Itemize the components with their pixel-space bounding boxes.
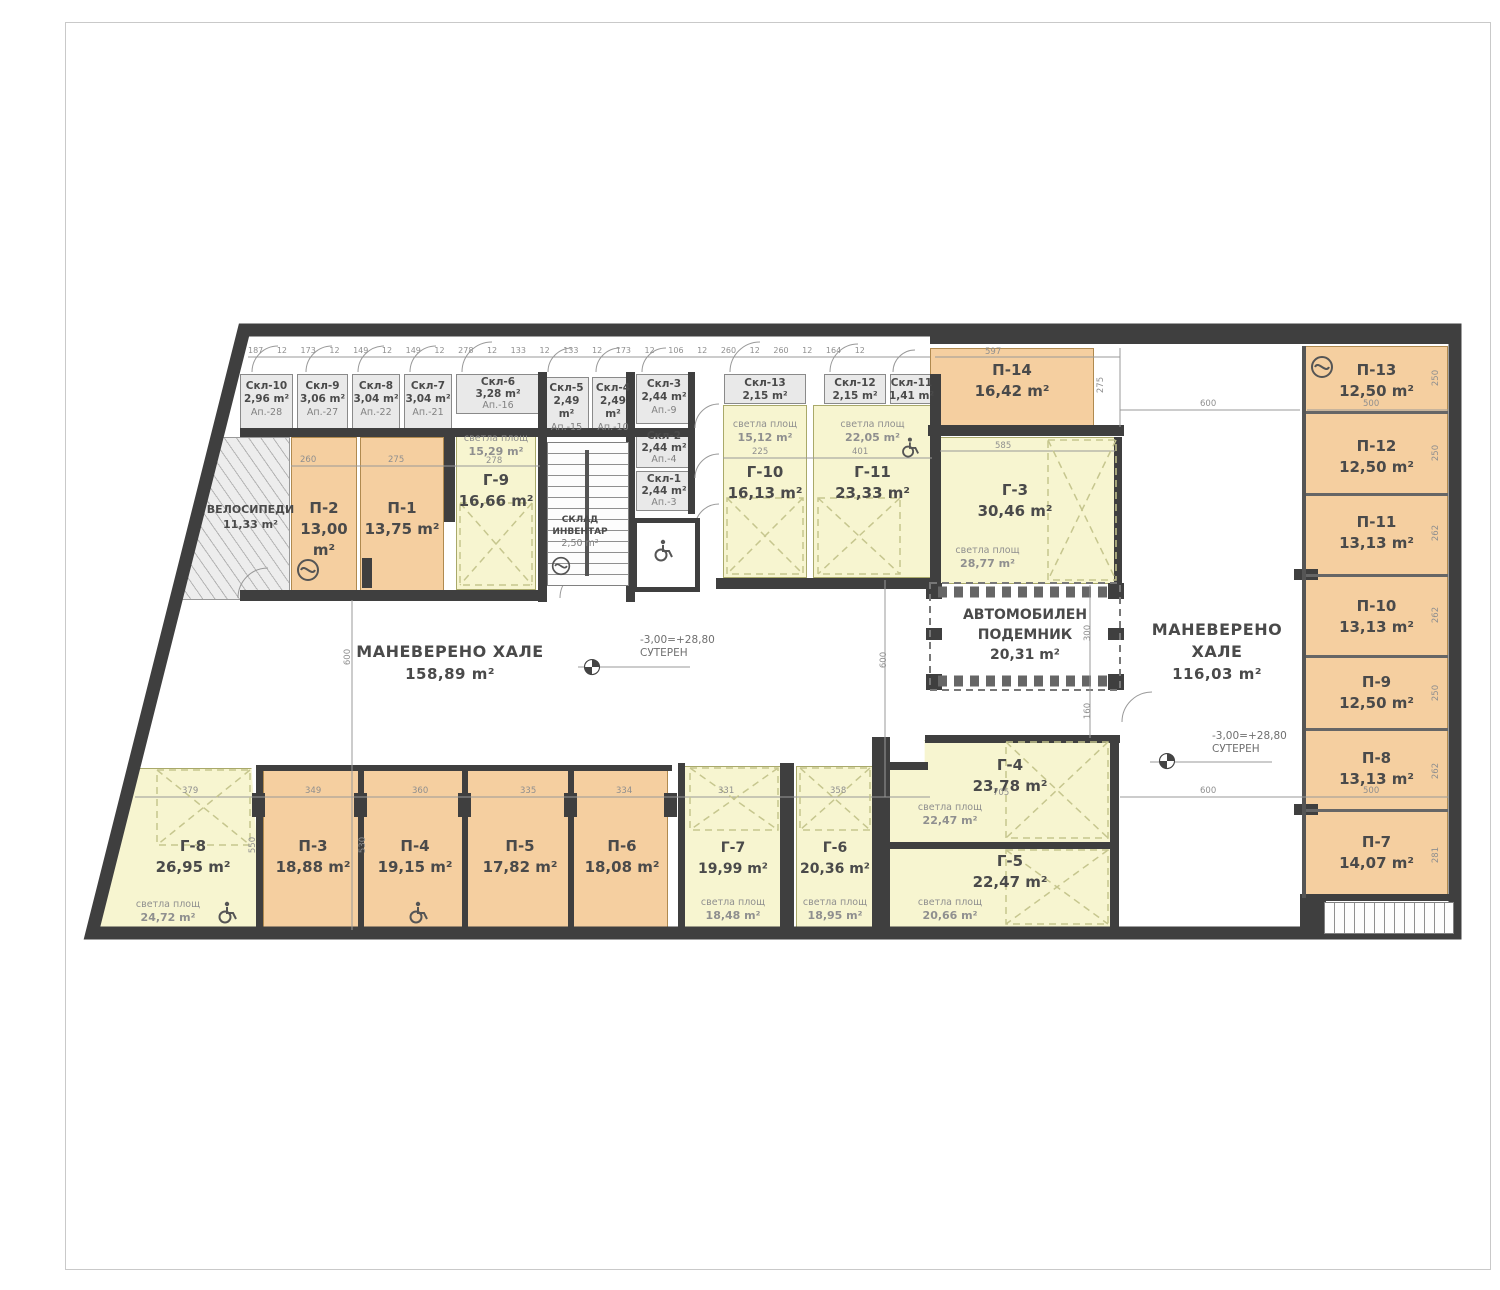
label-skl5: Скл-52,49 m²Ап.-15 [544,382,589,434]
wheelchair-icon [898,436,920,458]
skl12-area: 2,15 m² [824,390,886,403]
g6-svetla: 18,95 m² [796,909,874,922]
g6-area: 20,36 m² [796,859,874,880]
top-dimension-row: 187 12 173 12 149 12 149 12 278 12 133 1… [248,346,930,355]
skl1-name: Скл-1 [636,473,692,485]
label-g11: Г-1123,33 m² [813,462,932,504]
dim-275: 275 [1096,377,1106,393]
p7-name: П-7 [1305,832,1448,853]
label-p4: П-419,15 m² [366,836,464,878]
hall-right-area: 116,03 m² [1128,663,1306,685]
svetla-label: светла площ [803,897,867,908]
skl13-area: 2,15 m² [724,390,806,403]
svetla-g6: светла площ18,95 m² [796,896,874,922]
dim-250c: 250 [1431,685,1441,701]
label-skl9: Скл-93,06 m²Ап.-27 [297,380,348,419]
label-g6: Г-620,36 m² [796,838,874,880]
skl8-apt: Ап.-22 [352,406,400,419]
p2-area: 13,00 m² [291,519,357,561]
svetla-label: светла площ [840,419,904,430]
dim-260: 260 [300,455,316,465]
car-lift-line1: АВТОМОБИЛЕН [935,605,1115,625]
dim-585: 585 [995,441,1011,451]
dim-278: 278 [486,456,502,466]
g3-svetla: 28,77 m² [930,557,1045,570]
dim-705: 705 [993,788,1009,798]
level-value: -3,00=+28,80 [1212,730,1287,743]
dim-358: 358 [830,786,846,796]
skl5-apt: Ап.-15 [544,421,589,434]
skl2-area: 2,44 m² [636,442,692,454]
skl1-apt: Ап.-3 [636,497,692,509]
svetla-label: светла площ [464,433,528,444]
skl4-name: Скл-4 [592,382,634,395]
p3-area: 18,88 m² [266,857,360,878]
wheelchair-icon [405,900,429,924]
dim-335: 335 [520,786,536,796]
svetla-g9: светла площ15,29 m² [456,432,536,458]
label-p1: П-113,75 m² [360,498,444,540]
p1-name: П-1 [360,498,444,519]
p2-name: П-2 [291,498,357,519]
g11-name: Г-11 [813,462,932,483]
svetla-label: светла площ [918,802,982,813]
drain-icon [296,558,320,582]
skl8-name: Скл-8 [352,380,400,393]
skl6-name: Скл-6 [456,376,540,388]
level-marker-icon [583,658,601,676]
g5-area: 22,47 m² [930,872,1090,893]
label-g9: Г-916,66 m² [456,470,536,512]
dim-597: 597 [985,347,1001,357]
skl9-name: Скл-9 [297,380,348,393]
bike-area: 11,33 m² [203,517,298,532]
g8-area: 26,95 m² [128,857,258,878]
label-hall-left: МАНЕВЕРЕНО ХАЛЕ158,89 m² [330,641,570,685]
dim-600-top: 600 [1200,399,1216,409]
g3-name: Г-3 [940,480,1090,501]
label-hall-right: МАНЕВЕРЕНО ХАЛЕ116,03 m² [1128,619,1306,685]
skl1-area: 2,44 m² [636,485,692,497]
p4-name: П-4 [366,836,464,857]
dim-334: 334 [616,786,632,796]
g5-svetla: 20,66 m² [890,909,1010,922]
dim-530: 530 [358,837,368,853]
dim-262b: 262 [1431,607,1441,623]
dim-281: 281 [1431,847,1441,863]
skl10-area: 2,96 m² [240,393,293,406]
inventory-line2: ИНВЕНТАР [548,526,612,538]
dim-600-left: 600 [343,649,353,665]
dim-262c: 262 [1431,763,1441,779]
svetla-label: светла площ [136,899,200,910]
label-g8: Г-826,95 m² [128,836,258,878]
svetla-g10: светла площ15,12 m² [723,418,807,444]
g11-area: 23,33 m² [813,483,932,504]
inventory-line1: СКЛАД [548,514,612,526]
skl7-area: 3,04 m² [404,393,452,406]
label-skl12: Скл-122,15 m² [824,377,886,403]
p5-area: 17,82 m² [470,857,570,878]
skl13-name: Скл-13 [724,377,806,390]
p11-area: 13,13 m² [1305,533,1448,554]
label-bike: ВЕЛОСИПЕДИ11,33 m² [203,502,298,532]
p8-name: П-8 [1305,748,1448,769]
label-g7: Г-719,99 m² [684,838,782,880]
dim-550: 550 [248,837,258,853]
svetla-g5: светла площ20,66 m² [890,896,1010,922]
skl5-area: 2,49 m² [544,395,589,421]
g4-svetla: 22,47 m² [890,814,1010,827]
hall-right-name: МАНЕВЕРЕНО ХАЛЕ [1128,619,1306,663]
car-lift-area: 20,31 m² [935,645,1115,665]
label-inventory: СКЛАДИНВЕНТАР2,50 m² [548,514,612,550]
p1-area: 13,75 m² [360,519,444,540]
dim-500-bottom: 500 [1363,786,1379,796]
dim-300: 300 [1083,625,1093,641]
p5-name: П-5 [470,836,570,857]
svetla-label: светла площ [733,419,797,430]
label-p9: П-912,50 m² [1305,672,1448,714]
dim-360: 360 [412,786,428,796]
hall-left-name: МАНЕВЕРЕНО ХАЛЕ [330,641,570,663]
label-p8: П-813,13 m² [1305,748,1448,790]
g4-area: 23,78 m² [930,776,1090,797]
dim-500-top: 500 [1363,399,1379,409]
g10-area: 16,13 m² [723,483,807,504]
skl9-area: 3,06 m² [297,393,348,406]
label-g10: Г-1016,13 m² [723,462,807,504]
g6-name: Г-6 [796,838,874,859]
label-p2: П-213,00 m² [291,498,357,561]
label-g5: Г-522,47 m² [930,851,1090,893]
inventory-area: 2,50 m² [548,538,612,550]
svetla-label: светла площ [918,897,982,908]
skl11-name: Скл-11 [888,377,935,390]
bike-name: ВЕЛОСИПЕДИ [203,502,298,517]
svetla-label: светла площ [955,545,1019,556]
svetla-label: светла площ [701,897,765,908]
dim-160: 160 [1083,703,1093,719]
skl12-name: Скл-12 [824,377,886,390]
skl9-apt: Ап.-27 [297,406,348,419]
p14-name: П-14 [930,360,1094,381]
skl10-name: Скл-10 [240,380,293,393]
svetla-g3: светла площ28,77 m² [930,544,1045,570]
label-skl3: Скл-32,44 m²Ап.-9 [636,378,692,417]
skl4-apt: Ап.-10 [592,421,634,434]
dim-331: 331 [718,786,734,796]
level-value: -3,00=+28,80 [640,634,715,647]
dim-379: 379 [182,786,198,796]
dim-600-mid: 600 [879,652,889,668]
g5-name: Г-5 [930,851,1090,872]
label-p7: П-714,07 m² [1305,832,1448,874]
label-p11: П-1113,13 m² [1305,512,1448,554]
floor-name: СУТЕРЕН [1212,743,1287,756]
p4-area: 19,15 m² [366,857,464,878]
label-skl1: Скл-12,44 m²Ап.-3 [636,473,692,509]
dim-401: 401 [852,447,868,457]
p9-area: 12,50 m² [1305,693,1448,714]
label-p14: П-1416,42 m² [930,360,1094,402]
skl6-area: 3,28 m² [456,388,540,400]
p6-name: П-6 [576,836,668,857]
skl4-area: 2,49 m² [592,395,634,421]
label-p3: П-318,88 m² [266,836,360,878]
p10-name: П-10 [1305,596,1448,617]
g7-name: Г-7 [684,838,782,859]
hall-left-area: 158,89 m² [330,663,570,685]
label-skl6: Скл-63,28 m²Ап.-16 [456,376,540,412]
dim-349: 349 [305,786,321,796]
level-marker-icon [1158,752,1176,770]
wheelchair-icon [650,538,674,562]
skl7-name: Скл-7 [404,380,452,393]
skl5-name: Скл-5 [544,382,589,395]
p14-area: 16,42 m² [930,381,1094,402]
floor-name: СУТЕРЕН [640,647,715,660]
p10-area: 13,13 m² [1305,617,1448,638]
skl10-apt: Ап.-28 [240,406,293,419]
g3-area: 30,46 m² [940,501,1090,522]
dim-262a: 262 [1431,525,1441,541]
dim-225: 225 [752,447,768,457]
p12-name: П-12 [1305,436,1448,457]
dim-250a: 250 [1431,370,1441,386]
g7-svetla: 18,48 m² [684,909,782,922]
skl11-area: 1,41 m² [888,390,935,403]
label-p5: П-517,82 m² [470,836,570,878]
p11-name: П-11 [1305,512,1448,533]
p12-area: 12,50 m² [1305,457,1448,478]
skl8-area: 3,04 m² [352,393,400,406]
drain-icon [1310,355,1334,379]
skl2-apt: Ап.-4 [636,454,692,466]
g4-name: Г-4 [930,755,1090,776]
g9-name: Г-9 [456,470,536,491]
svetla-g8: светла площ24,72 m² [108,898,228,924]
label-skl8: Скл-83,04 m²Ап.-22 [352,380,400,419]
dim-275b: 275 [388,455,404,465]
label-g3: Г-330,46 m² [940,480,1090,522]
p3-name: П-3 [266,836,360,857]
label-skl11: Скл-111,41 m² [888,377,935,403]
label-p10: П-1013,13 m² [1305,596,1448,638]
level-note-left: -3,00=+28,80СУТЕРЕН [640,634,715,660]
g8-name: Г-8 [128,836,258,857]
skl3-area: 2,44 m² [636,391,692,404]
label-skl4: Скл-42,49 m²Ап.-10 [592,382,634,434]
p6-area: 18,08 m² [576,857,668,878]
level-note-right: -3,00=+28,80СУТЕРЕН [1212,730,1287,756]
g10-svetla: 15,12 m² [723,431,807,444]
label-p12: П-1212,50 m² [1305,436,1448,478]
label-g4: Г-423,78 m² [930,755,1090,797]
skl6-apt: Ап.-16 [456,400,540,412]
label-skl13: Скл-132,15 m² [724,377,806,403]
skl3-name: Скл-3 [636,378,692,391]
p9-name: П-9 [1305,672,1448,693]
svetla-g4: светла площ22,47 m² [890,801,1010,827]
dim-600-bottom: 600 [1200,786,1216,796]
label-skl2: Скл-22,44 m²Ап.-4 [636,430,692,466]
stair-rail [585,450,589,576]
skl7-apt: Ап.-21 [404,406,452,419]
label-skl10: Скл-102,96 m²Ап.-28 [240,380,293,419]
floor-plan-page: { "rooms": { "skl10": {"name": "Скл-10",… [0,0,1500,1290]
p7-area: 14,07 m² [1305,853,1448,874]
wheelchair-icon [214,900,238,924]
dim-250b: 250 [1431,445,1441,461]
label-p6: П-618,08 m² [576,836,668,878]
drain-icon [551,556,571,576]
g8-svetla: 24,72 m² [108,911,228,924]
g7-area: 19,99 m² [684,859,782,880]
g10-name: Г-10 [723,462,807,483]
right-staircase [1324,902,1454,934]
label-skl7: Скл-73,04 m²Ап.-21 [404,380,452,419]
skl2-name: Скл-2 [636,430,692,442]
skl3-apt: Ап.-9 [636,404,692,417]
svetla-g7: светла площ18,48 m² [684,896,782,922]
g9-area: 16,66 m² [456,491,536,512]
